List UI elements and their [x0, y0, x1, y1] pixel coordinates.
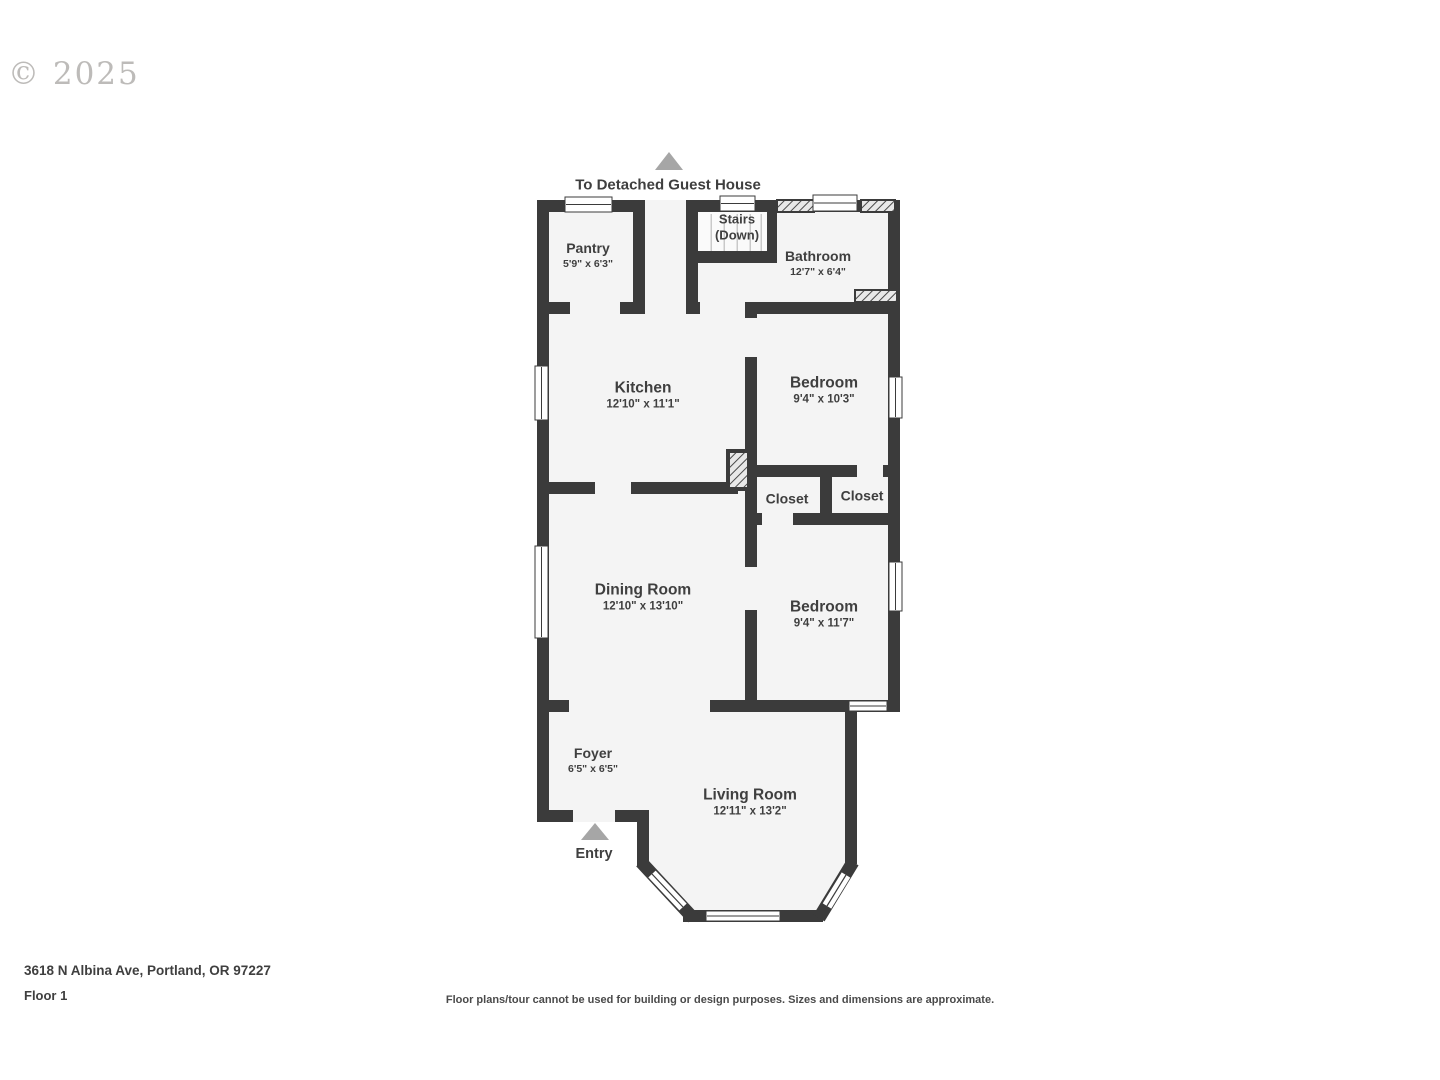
entry-arrow-icon [581, 823, 609, 840]
guest-house-arrow-icon [655, 152, 683, 170]
stairs-label-line1: Stairs [719, 212, 755, 227]
guest-house-label: To Detached Guest House [575, 177, 761, 194]
chimney-hatch [728, 451, 749, 489]
property-address: 3618 N Albina Ave, Portland, OR 97227 [24, 963, 271, 978]
floor-plan-page: © 2025 [0, 0, 1440, 1080]
entry-label: Entry [575, 846, 612, 862]
disclaimer-text: Floor plans/tour cannot be used for buil… [446, 994, 994, 1006]
stairs-label-line2: (Down) [715, 228, 759, 243]
floor-plan-drawing [0, 0, 1440, 1080]
floor-indicator: Floor 1 [24, 988, 67, 1003]
